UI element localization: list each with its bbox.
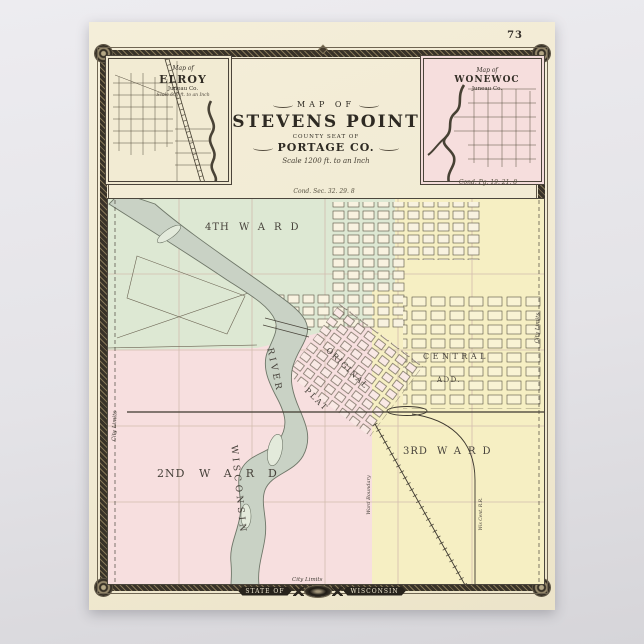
stevens-point-map: 4TH WARD 2ND WARD 3RD WARD CENTRAL ADD. … — [107, 198, 545, 585]
wonewoc-street-grid — [454, 89, 536, 167]
label-central: CENTRAL — [423, 352, 489, 361]
title-county: PORTAGE CO. — [232, 141, 420, 154]
label-ward-boundary: Ward Boundary — [366, 475, 372, 515]
label-ward4-word: WARD — [239, 222, 308, 233]
atlas-poster: 73 — [89, 22, 555, 610]
elroy-title-scale: Scale 600 ft. to an Inch — [143, 93, 223, 99]
inset-map-elroy-canvas: Map of ELROY Juneau Co. Scale 600 ft. to… — [108, 58, 229, 182]
inset-map-wonewoc: Map of WONEWOC Juneau Co. — [420, 55, 545, 185]
ribbon-cross-icon — [293, 587, 304, 596]
elroy-title-name: ELROY — [143, 73, 223, 87]
label-ward2-word: WARD — [199, 467, 291, 480]
elroy-river — [209, 101, 216, 182]
label-central-add: ADD. — [436, 376, 461, 384]
label-railroad-vertical: Wis Cent. R.R. — [478, 497, 484, 531]
label-city-limits-right: City Limits — [534, 313, 541, 344]
inset-map-elroy: Map of ELROY Juneau Co. Scale 600 ft. to… — [105, 55, 232, 185]
wonewoc-title-name: WONEWOC — [442, 75, 532, 86]
label-ward3-num: 3RD — [403, 446, 428, 457]
bottom-banner: STATE OF WISCONSIN — [89, 584, 555, 598]
ribbon-cross-icon — [332, 587, 343, 596]
label-ward2-num: 2ND — [157, 467, 185, 480]
wonewoc-title-county: Juneau Co. — [442, 86, 532, 93]
wonewoc-inset-title: Map of WONEWOC Juneau Co. — [442, 67, 532, 93]
street-grid-central-addition — [403, 293, 544, 409]
flourish-icon — [379, 145, 399, 151]
screenshot-root: { "page": { "number": "73" }, "title_blo… — [0, 0, 644, 644]
banner-ribbon-left: STATE OF — [238, 587, 291, 596]
caption-cond-pg: Cond. Pg. 19. 21. 8 — [433, 179, 543, 186]
banner-wisconsin: WISCONSIN — [351, 588, 399, 595]
wonewoc-title-prefix: Map of — [442, 67, 532, 75]
title-map-of-text: MAP OF — [297, 100, 355, 109]
label-city-limits-left: City Limits — [111, 411, 118, 442]
flourish-icon — [273, 102, 293, 108]
banner-ribbon-right: WISCONSIN — [344, 587, 406, 596]
map-title-block: MAP OF STEVENS POINT COUNTY SEAT OF PORT… — [232, 100, 420, 165]
elroy-title-prefix: Map of — [143, 65, 223, 73]
title-map-of: MAP OF — [232, 100, 420, 109]
page-number: 73 — [507, 30, 523, 41]
title-county-seat: COUNTY SEAT OF — [232, 134, 420, 140]
label-city-limits-bottom: City Limits — [292, 577, 323, 583]
banner-medallion-icon — [305, 586, 331, 597]
flourish-icon — [359, 102, 379, 108]
title-county-text: PORTAGE CO. — [277, 141, 374, 154]
crest-ornament-icon — [295, 45, 351, 55]
wonewoc-river — [428, 85, 464, 182]
banner-state-of: STATE OF — [245, 588, 284, 595]
flourish-icon — [253, 145, 273, 151]
title-main: STEVENS POINT — [232, 112, 420, 132]
inset-map-wonewoc-canvas: Map of WONEWOC Juneau Co. — [423, 58, 542, 182]
caption-cond-sec: Cond. Sec. 32. 29. 8 — [239, 188, 409, 195]
label-ward3-word: WARD — [437, 446, 498, 457]
title-scale: Scale 1200 ft. to an Inch — [232, 157, 420, 165]
elroy-inset-title: Map of ELROY Juneau Co. Scale 600 ft. to… — [143, 65, 223, 99]
label-ward4-num: 4TH — [205, 222, 230, 233]
